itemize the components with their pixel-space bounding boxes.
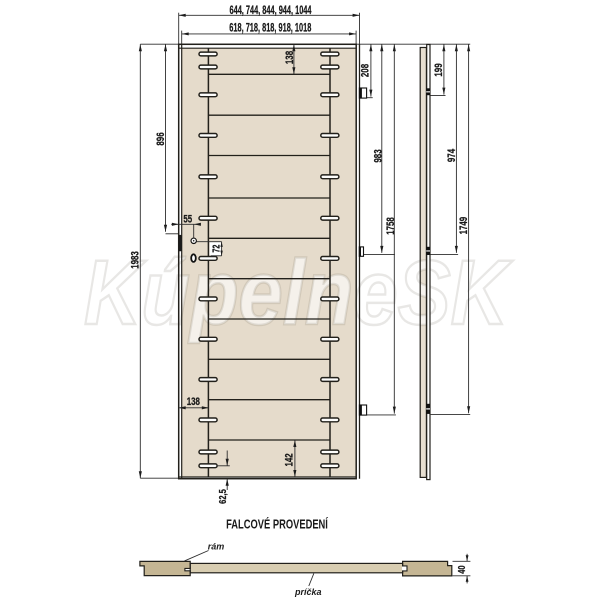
svg-text:618, 718, 818, 918, 1018: 618, 718, 818, 918, 1018: [229, 22, 311, 35]
svg-text:644, 744, 844, 944, 1044: 644, 744, 844, 944, 1044: [229, 5, 311, 18]
svg-text:1758: 1758: [385, 217, 398, 235]
svg-text:199: 199: [433, 63, 446, 76]
svg-text:40: 40: [456, 565, 467, 573]
svg-text:142: 142: [283, 453, 296, 466]
svg-text:896: 896: [155, 132, 168, 145]
svg-text:208: 208: [359, 63, 372, 77]
svg-text:62,5: 62,5: [217, 489, 228, 504]
svg-text:príčka: príčka: [294, 587, 322, 597]
svg-text:138: 138: [284, 50, 297, 64]
svg-text:55: 55: [183, 213, 192, 226]
svg-text:FALCOVÉ PROVEDENÍ: FALCOVÉ PROVEDENÍ: [226, 517, 329, 532]
svg-text:1749: 1749: [458, 217, 471, 235]
svg-text:138: 138: [187, 396, 201, 409]
svg-text:974: 974: [446, 148, 459, 162]
svg-text:1983: 1983: [129, 251, 142, 269]
svg-text:rám: rám: [208, 542, 225, 552]
svg-text:983: 983: [372, 149, 385, 162]
svg-text:KúpelneSK: KúpelneSK: [84, 242, 514, 344]
svg-text:72: 72: [210, 244, 221, 252]
